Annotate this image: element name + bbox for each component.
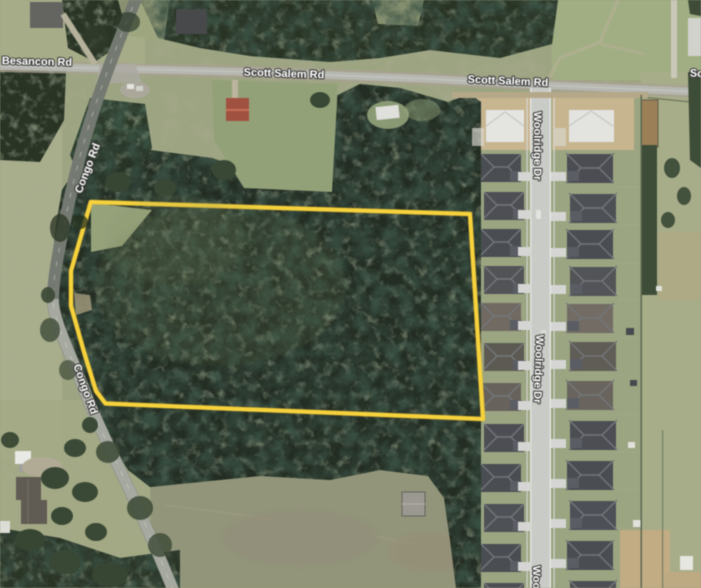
svg-text:Woolridge Dr: Woolridge Dr [530,566,542,588]
svg-text:Woolridge Dr: Woolridge Dr [531,334,545,404]
svg-text:Sco: Sco [690,68,701,81]
svg-text:Besancon Rd: Besancon Rd [2,55,73,69]
svg-text:Woolridge Dr: Woolridge Dr [531,112,543,182]
